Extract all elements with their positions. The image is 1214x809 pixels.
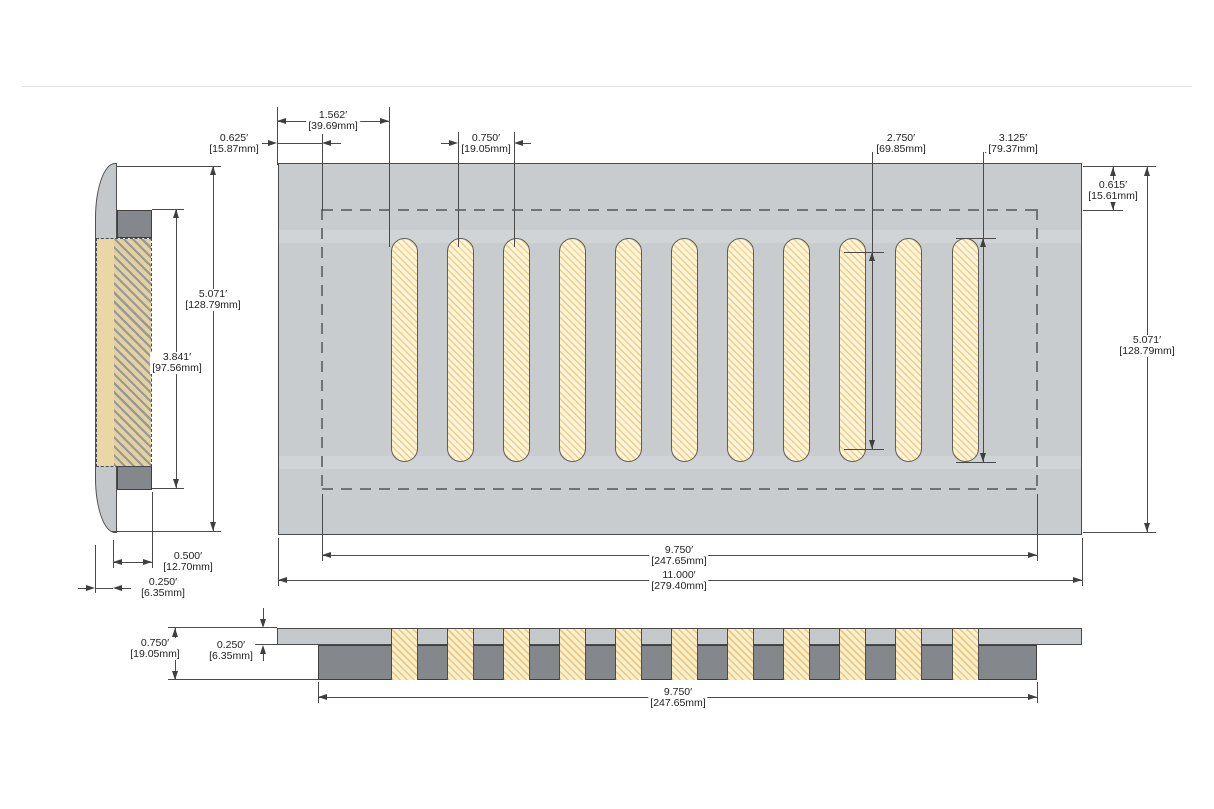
ext-line: [1083, 532, 1156, 533]
arrow-left-icon: [277, 118, 286, 124]
side-opening-hatch: [96, 238, 152, 467]
ext-line: [389, 107, 390, 247]
arrow-left-icon: [318, 694, 327, 700]
section-slot-stripe: [615, 629, 642, 680]
dim-tick: [956, 462, 996, 463]
arrow-down-icon: [1144, 523, 1150, 532]
page-rule: [22, 86, 1192, 87]
vent-slot: [391, 238, 418, 462]
arrow-right-icon: [380, 118, 389, 124]
ext-line: [117, 166, 221, 167]
duct-outline-left: [321, 209, 323, 490]
dim-tick: [844, 449, 884, 450]
dim-mm: [247.65mm]: [650, 698, 705, 709]
vent-slot: [615, 238, 642, 462]
vent-slot: [447, 238, 474, 462]
dim-mm: [128.79mm]: [185, 300, 240, 311]
dim-mm: [15.87mm]: [209, 144, 259, 155]
dim-tail: [122, 588, 131, 589]
dim-label-slot-overall: 3.125′ [79.37mm]: [986, 133, 1040, 155]
dim-tick: [956, 238, 996, 239]
dim-label-duct-inset-left: 0.625′ [15.87mm]: [207, 133, 261, 155]
arrow-up-icon: [869, 252, 875, 261]
side-duct-top: [117, 210, 152, 238]
vent-slot: [671, 238, 698, 462]
dim-label-overall-width: 11.000′ [279.40mm]: [649, 570, 708, 592]
vent-dimension-drawing: 1.562′ [39.69mm] 0.625′ [15.87mm] 0.750′…: [0, 0, 1214, 809]
dim-mm: [6.35mm]: [141, 588, 185, 599]
arrow-left-icon: [278, 577, 287, 583]
arrow-left-icon: [322, 552, 331, 558]
ext-line: [112, 531, 221, 532]
dim-line: [872, 252, 873, 449]
dim-mm: [39.69mm]: [308, 121, 358, 132]
section-slot-stripe: [727, 629, 754, 680]
dim-mm: [279.40mm]: [651, 581, 706, 592]
dim-line: [95, 588, 113, 589]
arrow-left-icon: [113, 559, 122, 565]
leader-line: [263, 608, 264, 619]
dim-line: [277, 143, 322, 144]
ext-line: [152, 492, 153, 568]
dim-label-slot-offset: 1.562′ [39.69mm]: [306, 110, 360, 132]
leader-line: [263, 654, 264, 661]
arrow-down-icon: [260, 619, 266, 628]
arrow-down-icon: [210, 522, 216, 531]
dim-label-duct-width-main: 9.750′ [247.65mm]: [649, 545, 708, 567]
arrow-down-icon: [172, 671, 178, 680]
section-slot-stripe: [895, 629, 922, 680]
ext-line: [1037, 494, 1038, 561]
dim-mm: [12.70mm]: [163, 562, 213, 573]
vent-slot: [559, 238, 586, 462]
vent-slot: [952, 238, 979, 462]
dim-label-duct-inset-top: 0.615′ [15.61mm]: [1086, 180, 1140, 202]
section-slot-stripe: [503, 629, 530, 680]
arrow-right-icon: [143, 559, 152, 565]
arrow-right-icon: [1073, 577, 1082, 583]
arrow-right-icon: [1028, 552, 1037, 558]
vent-slot: [839, 238, 866, 462]
dim-mm: [19.05mm]: [461, 144, 511, 155]
dim-mm: [15.61mm]: [1088, 191, 1138, 202]
dim-tick: [844, 252, 884, 253]
section-slot-stripe: [391, 629, 418, 680]
dim-line: [983, 238, 984, 462]
section-slot-stripe: [671, 629, 698, 680]
vent-slot: [727, 238, 754, 462]
dim-line: [213, 166, 214, 531]
section-slot-stripe: [952, 629, 979, 680]
ext-line: [514, 132, 515, 247]
duct-outline-top: [322, 209, 1037, 211]
dim-mm: [19.05mm]: [130, 649, 180, 660]
dim-tail: [523, 143, 531, 144]
arrow-left-icon: [113, 585, 122, 591]
dim-tail: [78, 588, 86, 589]
dim-label-section-depth: 0.750′ [19.05mm]: [128, 638, 182, 660]
leader-line: [872, 152, 873, 252]
dim-mm: [97.56mm]: [152, 363, 202, 374]
leader-line: [983, 152, 984, 238]
arrow-up-icon: [173, 209, 179, 218]
arrow-up-icon: [172, 628, 178, 637]
duct-outline-right: [1036, 209, 1038, 490]
dim-tick: [152, 209, 184, 210]
vent-slot: [503, 238, 530, 462]
section-slot-stripe: [839, 629, 866, 680]
dim-tail: [441, 143, 449, 144]
section-slot-stripe: [447, 629, 474, 680]
arrow-right-icon: [86, 585, 95, 591]
duct-outline-bottom: [322, 488, 1037, 490]
arrow-down-icon: [173, 479, 179, 488]
dim-label-slot-pitch: 0.750′ [19.05mm]: [459, 133, 513, 155]
arrow-up-icon: [1144, 167, 1150, 176]
dim-tick: [152, 488, 184, 489]
ext-line: [1083, 210, 1123, 211]
dim-line: [176, 209, 177, 488]
dim-label-duct-depth: 0.500′ [12.70mm]: [161, 551, 215, 573]
side-opening-flange-strip: [97, 239, 114, 466]
ext-line: [95, 545, 96, 593]
arrow-left-icon: [514, 140, 523, 146]
arrow-up-icon: [1110, 167, 1116, 176]
ext-line: [168, 679, 318, 680]
vent-slot: [783, 238, 810, 462]
arrow-down-icon: [980, 453, 986, 462]
section-slot-stripe: [559, 629, 586, 680]
arrow-down-icon: [1110, 201, 1116, 210]
arrow-up-icon: [980, 238, 986, 247]
ext-line: [1082, 538, 1083, 586]
ext-line: [1037, 682, 1038, 703]
vent-slot: [895, 238, 922, 462]
side-opening-duct-strip: [114, 239, 151, 466]
ext-line: [322, 494, 323, 561]
arrow-right-icon: [268, 140, 277, 146]
dim-mm: [128.79mm]: [1119, 346, 1174, 357]
dim-label-duct-opening-height: 3.841′ [97.56mm]: [150, 352, 204, 374]
dim-mm: [247.65mm]: [651, 556, 706, 567]
dim-label-section-plate: 0.250′ [6.35mm]: [207, 640, 255, 662]
dim-label-slot-straight: 2.750′ [69.85mm]: [874, 133, 928, 155]
dim-label-side-height: 5.071′ [128.79mm]: [183, 289, 242, 311]
arrow-up-icon: [260, 645, 266, 654]
section-slot-stripe: [783, 629, 810, 680]
dim-mm: [69.85mm]: [876, 144, 926, 155]
side-duct-bottom: [117, 466, 152, 490]
arrow-up-icon: [210, 166, 216, 175]
dim-label-section-duct-width: 9.750′ [247.65mm]: [648, 687, 707, 709]
dim-label-flange-thickness: 0.250′ [6.35mm]: [139, 577, 187, 599]
ext-line: [277, 107, 278, 165]
arrow-down-icon: [869, 440, 875, 449]
dim-mm: [79.37mm]: [988, 144, 1038, 155]
dim-tail: [331, 143, 341, 144]
arrow-right-icon: [449, 140, 458, 146]
arrow-right-icon: [1028, 694, 1037, 700]
dim-label-overall-height: 5.071′ [128.79mm]: [1117, 335, 1176, 357]
arrow-left-icon: [322, 140, 331, 146]
dim-mm: [6.35mm]: [209, 651, 253, 662]
